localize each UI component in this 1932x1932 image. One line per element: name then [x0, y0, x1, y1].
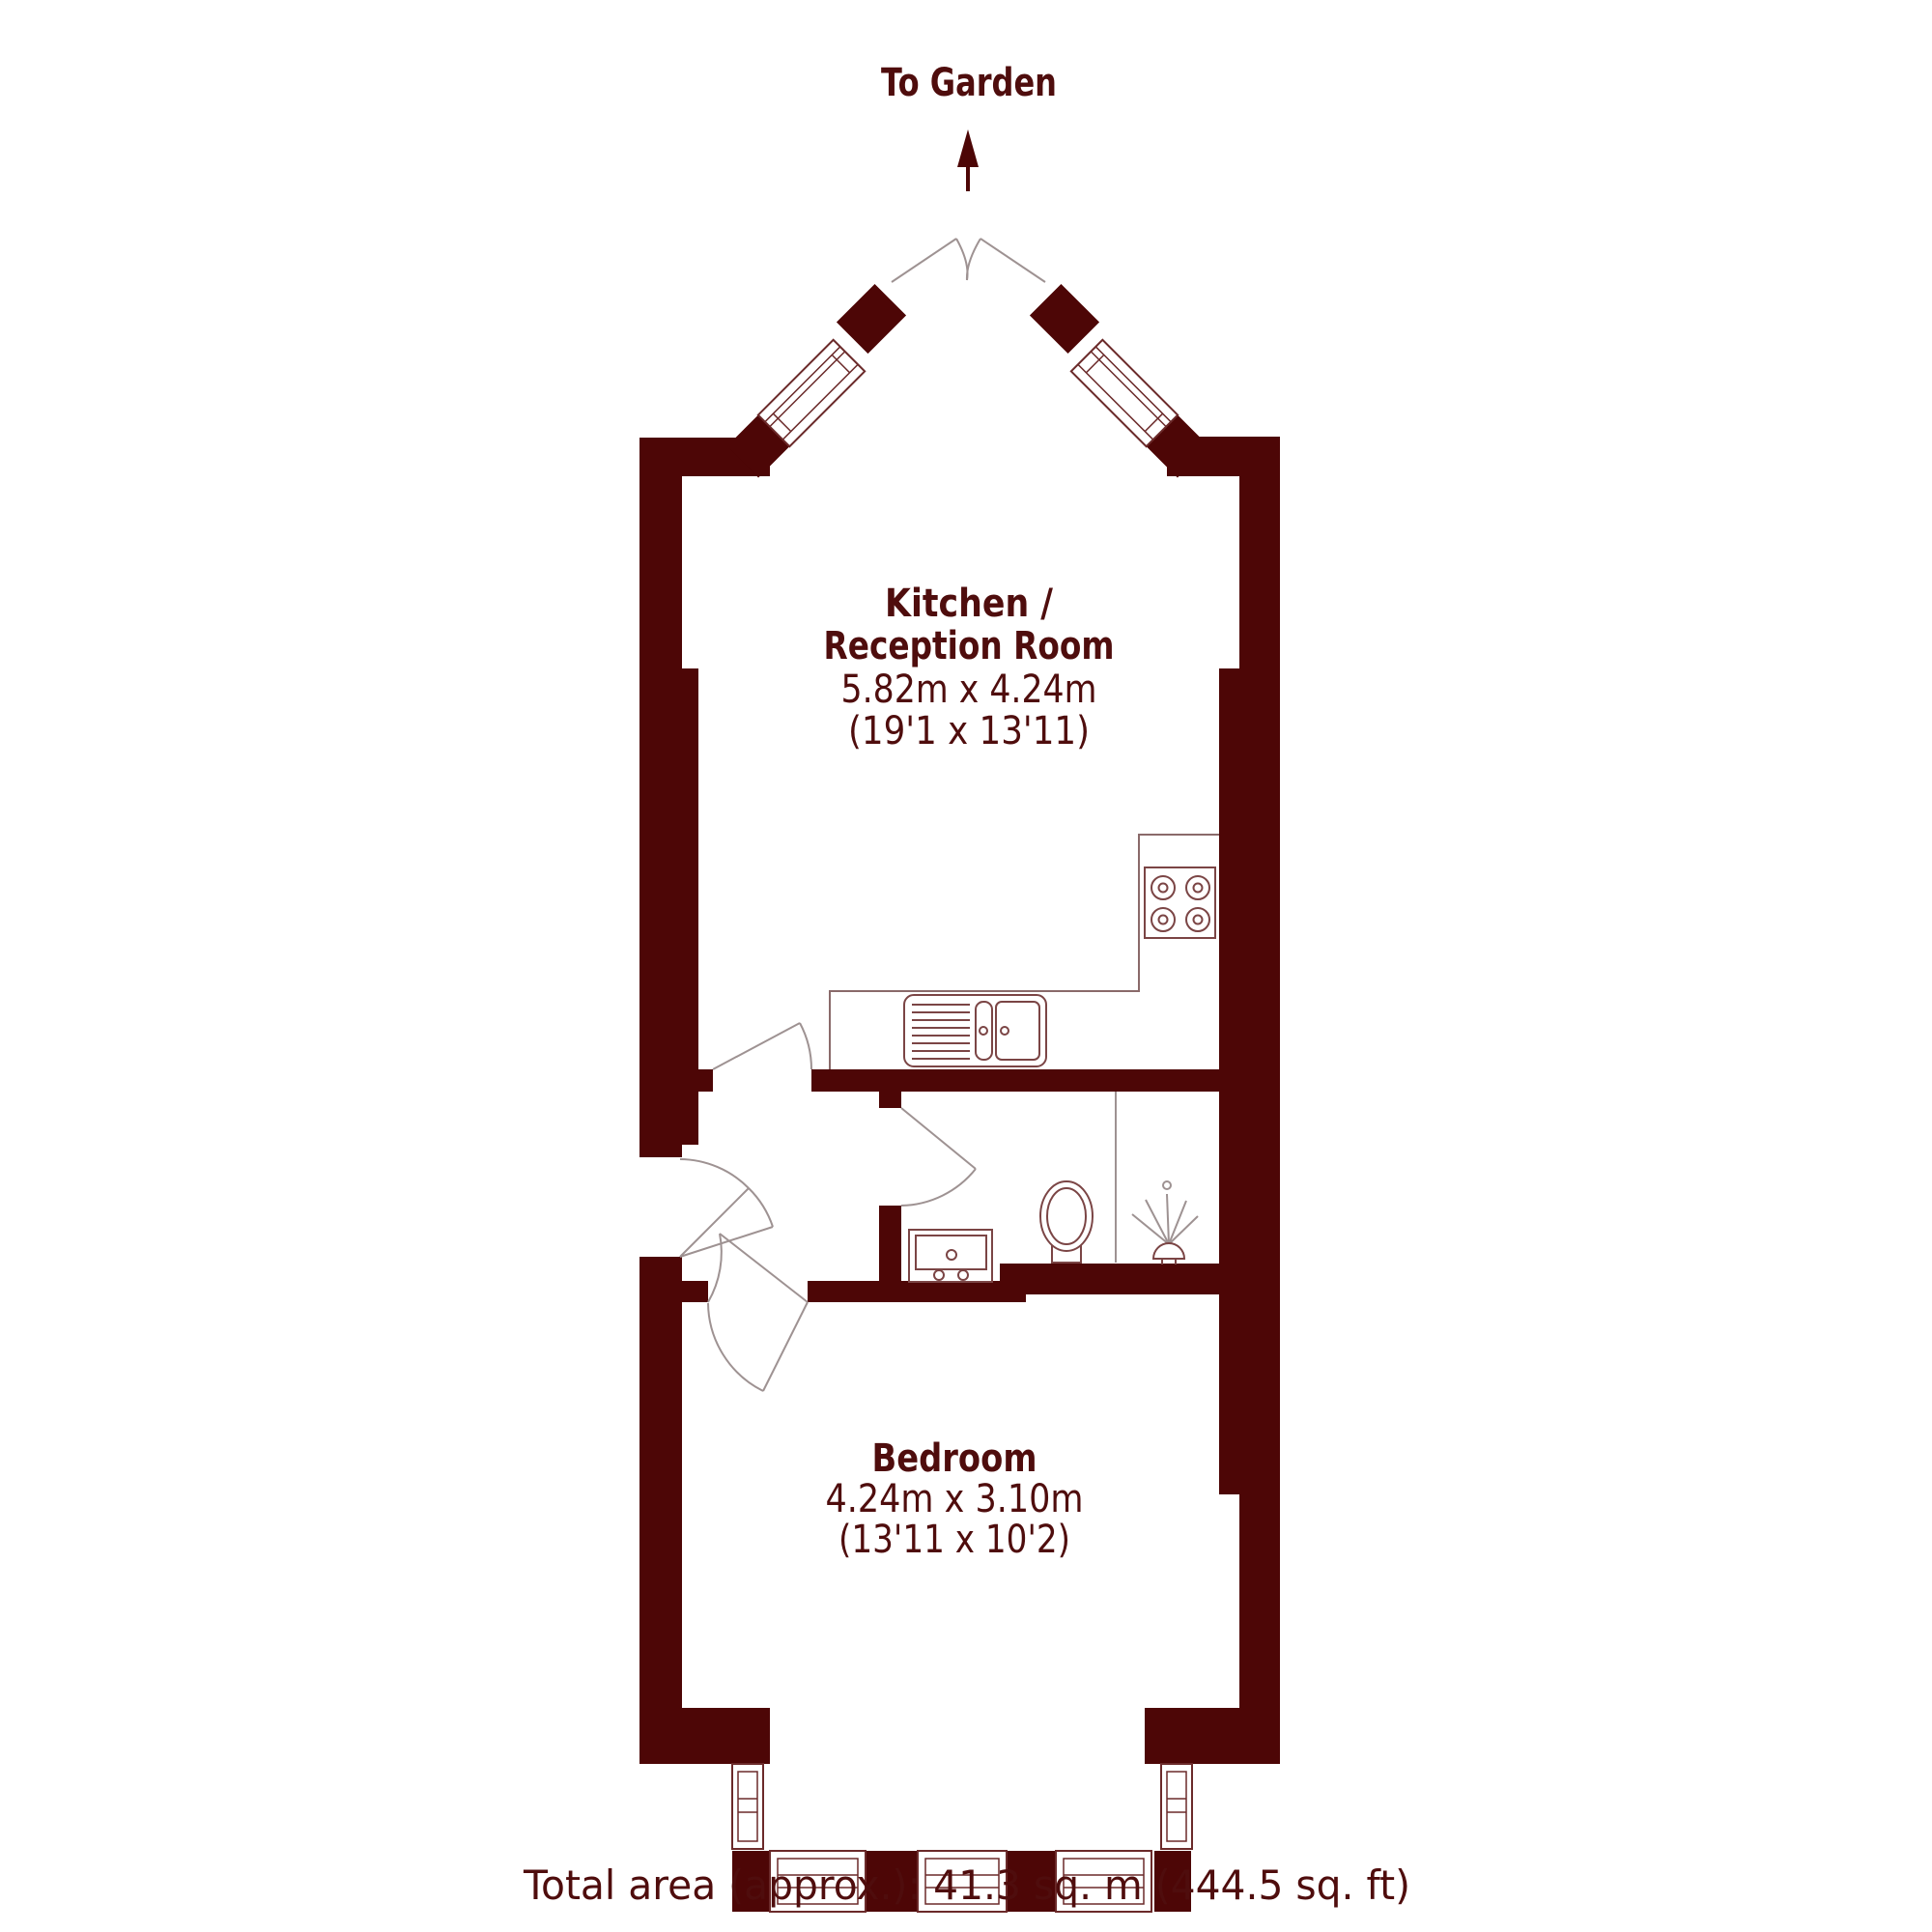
front-door-swing [680, 1159, 773, 1257]
wall-bathroom-floor [1000, 1264, 1280, 1294]
bedroom-door-swing [708, 1234, 808, 1391]
wall-bathroom-jamb [879, 1092, 901, 1108]
floorplan: To Garden [0, 0, 1932, 1932]
kitchen-door-swing [713, 1023, 811, 1069]
wall-bedroom-north-right [808, 1281, 1026, 1302]
wall-bathroom-west [879, 1206, 901, 1281]
sink-icon [904, 995, 1046, 1066]
wall-bottom-right-corner [1145, 1708, 1280, 1764]
bay-stub-left-apex [837, 284, 906, 354]
garden-arrow-icon [957, 129, 979, 191]
toilet-icon [1040, 1181, 1093, 1263]
rear-side-window-left-icon [732, 1764, 763, 1849]
bay-window-right-icon [1071, 340, 1178, 446]
garden-label: To Garden [881, 61, 1057, 105]
bathroom-door-swing [901, 1108, 976, 1206]
wall-left-door-jamb [639, 1145, 682, 1157]
wall-left-mid [639, 668, 698, 1145]
french-doors-open-icon [892, 239, 1045, 282]
kitchen-label-block: Kitchen / Reception Room 5.82m x 4.24m (… [824, 582, 1115, 753]
hob-icon [1145, 867, 1215, 938]
wall-left-lower [639, 1257, 682, 1764]
bedroom-name: Bedroom [872, 1436, 1037, 1481]
bedroom-dims-metric: 4.24m x 3.10m [826, 1477, 1084, 1521]
shower-head-icon [1132, 1181, 1198, 1264]
wall-bottom-left-corner [639, 1708, 770, 1764]
kitchen-dims-metric: 5.82m x 4.24m [841, 668, 1097, 712]
kitchen-dims-imperial: (19'1 x 13'11) [848, 709, 1090, 753]
bay-window-left-icon [758, 340, 865, 446]
bedroom-label-block: Bedroom 4.24m x 3.10m (13'11 x 10'2) [826, 1436, 1084, 1562]
kitchen-name-line2: Reception Room [824, 624, 1115, 668]
wall-right-mid [1219, 668, 1280, 1494]
wall-bedroom-north-left [639, 1281, 708, 1302]
bedroom-dims-imperial: (13'11 x 10'2) [838, 1518, 1070, 1562]
wall-right-upper [1239, 476, 1280, 668]
kitchen-fixtures [830, 835, 1219, 1069]
wall-kitchen-door-jamb [698, 1069, 713, 1092]
total-area-label: Total area (approx.): 41.3 sq. m (444.5 … [523, 1861, 1410, 1909]
kitchen-name-line1: Kitchen / [885, 582, 1053, 626]
bathroom-fixtures [909, 1092, 1198, 1282]
wash-basin-icon [909, 1230, 992, 1282]
wall-kitchen-divider [811, 1069, 1219, 1092]
front-bay [727, 239, 1209, 477]
bay-stub-right-apex [1030, 284, 1099, 354]
wall-right-lower [1239, 1494, 1280, 1708]
rear-side-window-right-icon [1161, 1764, 1192, 1849]
